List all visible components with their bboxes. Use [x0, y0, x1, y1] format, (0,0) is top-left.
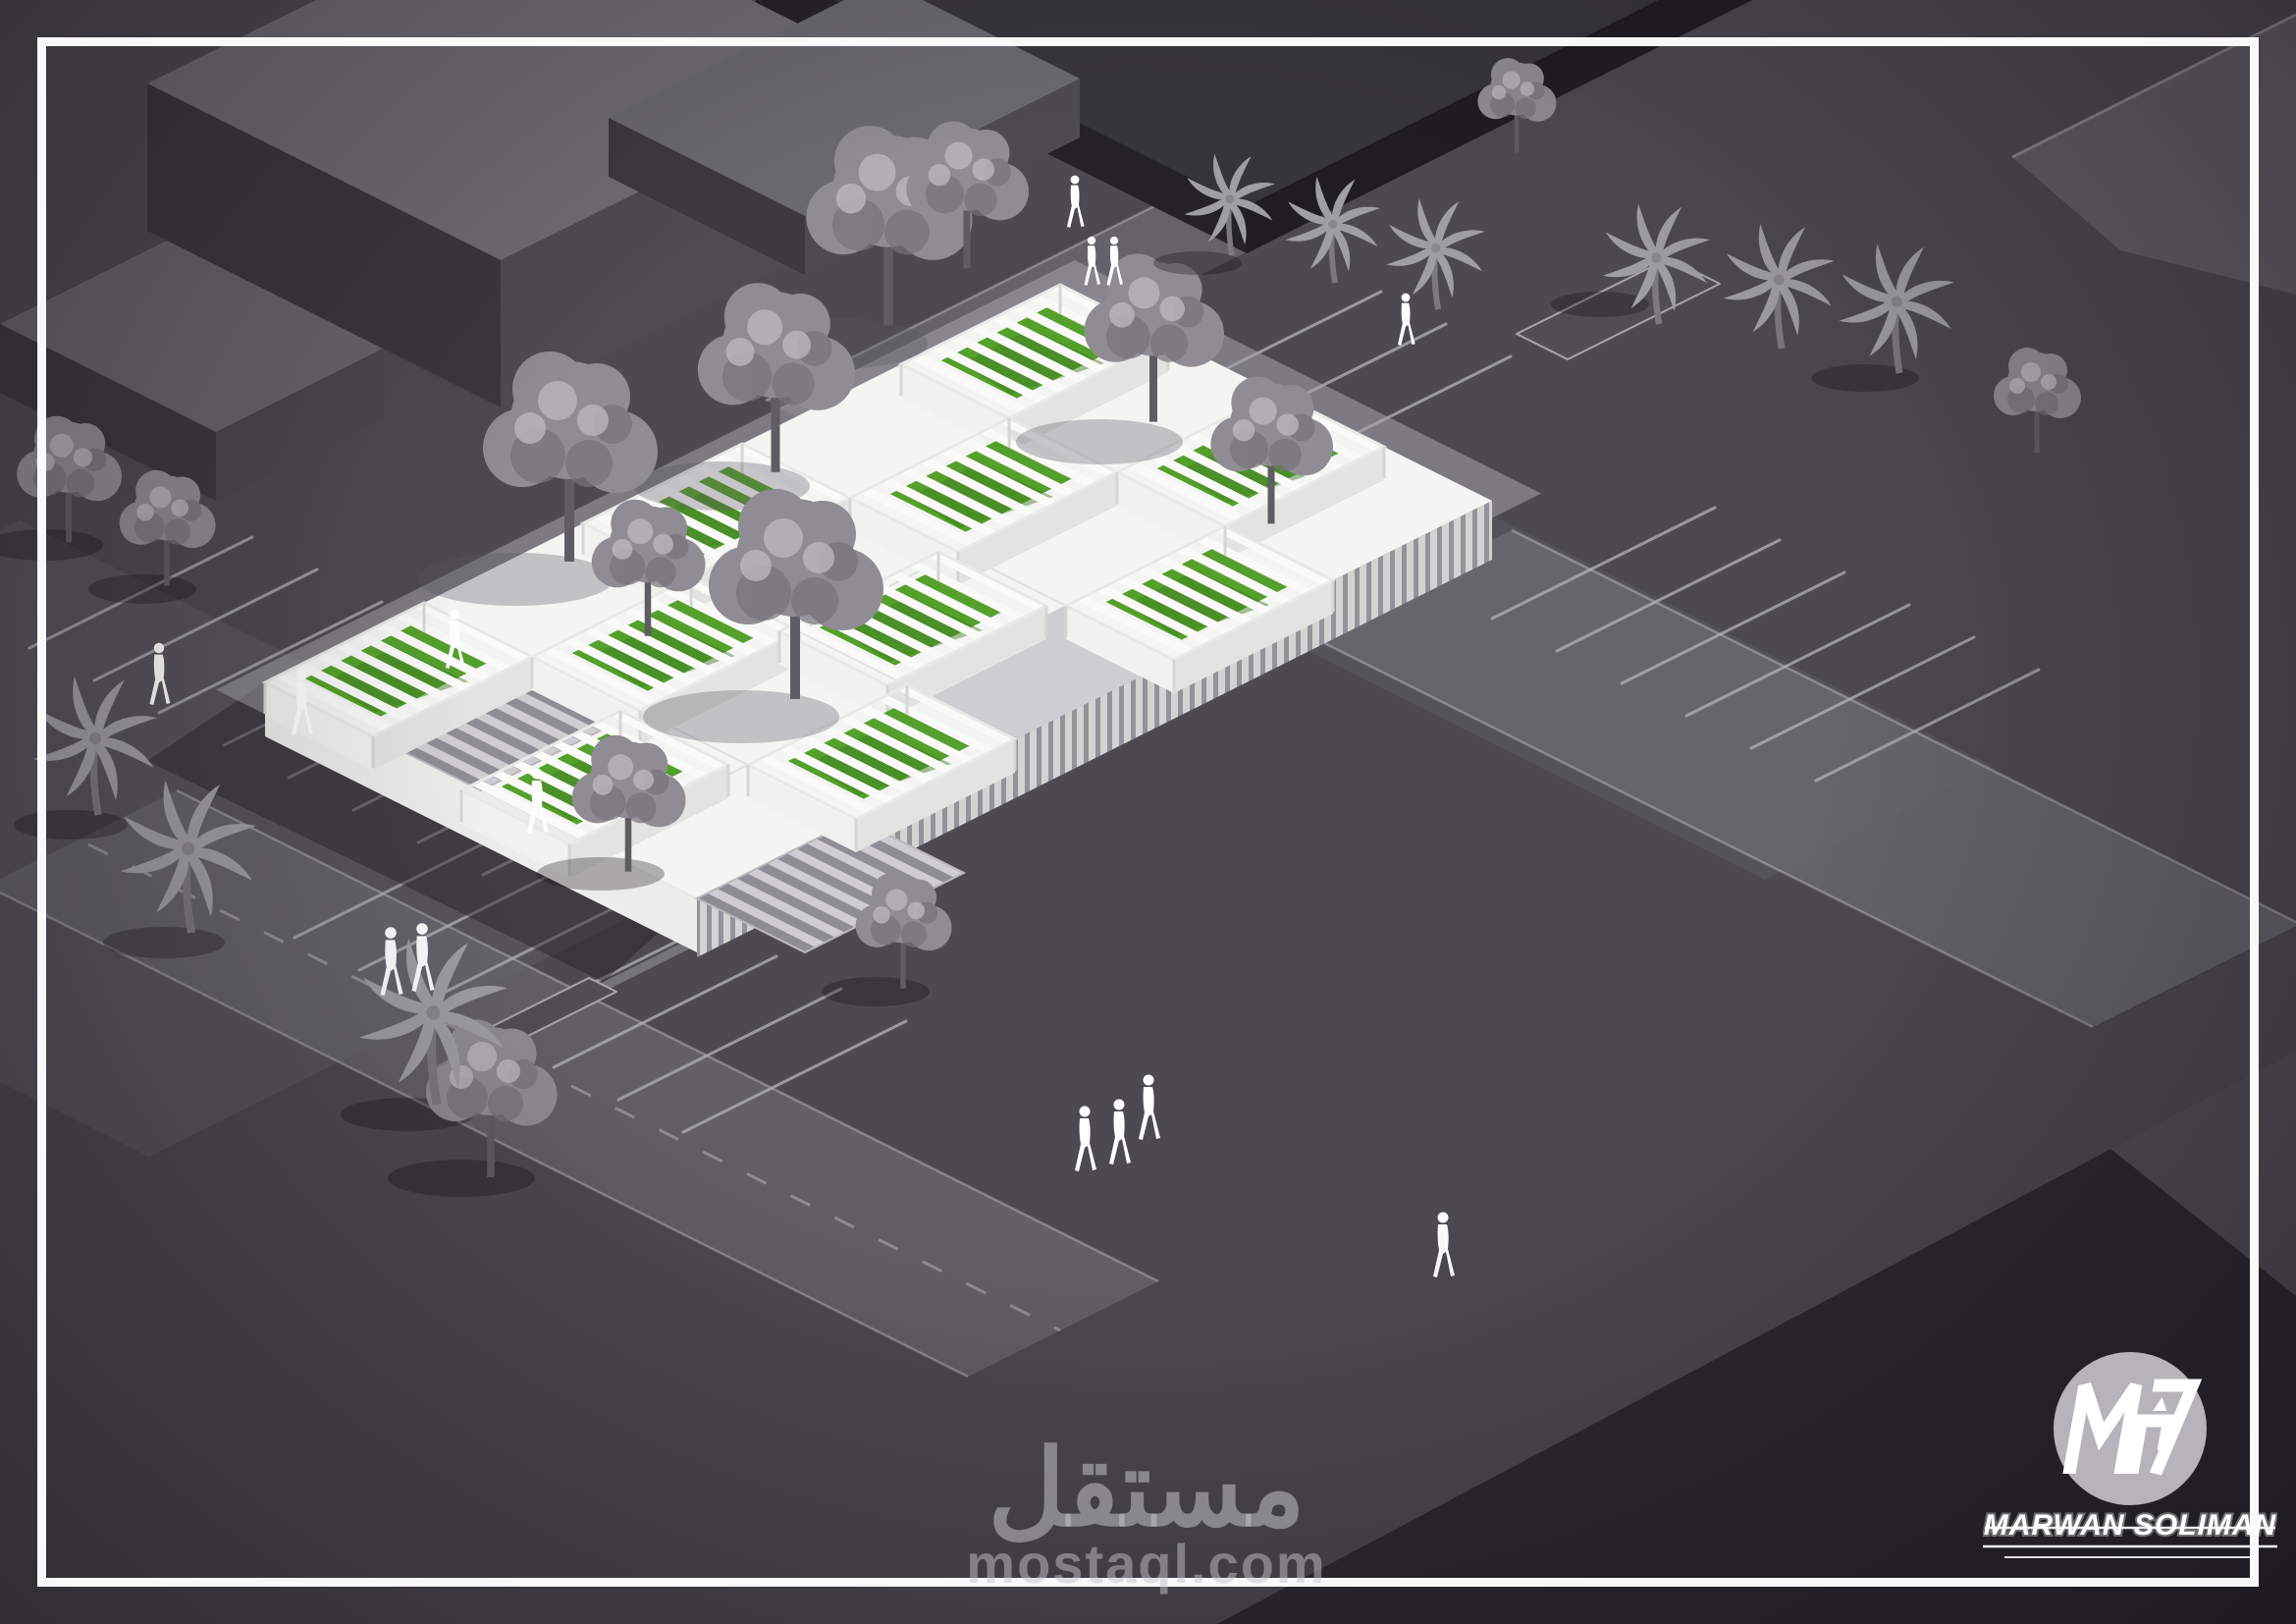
brand-name-block: MARWAN SOLIMAN MARWAN SOLIMAN — [1983, 1509, 2277, 1557]
render-scene — [0, 0, 2296, 1624]
architectural-render-canvas: مستقل mostaql.com MARWAN SOLIMAN MARWAN … — [0, 0, 2296, 1624]
brand-name-text: MARWAN SOLIMAN — [1984, 1509, 2277, 1542]
brand-logo: MARWAN SOLIMAN MARWAN SOLIMAN — [1983, 1335, 2277, 1581]
